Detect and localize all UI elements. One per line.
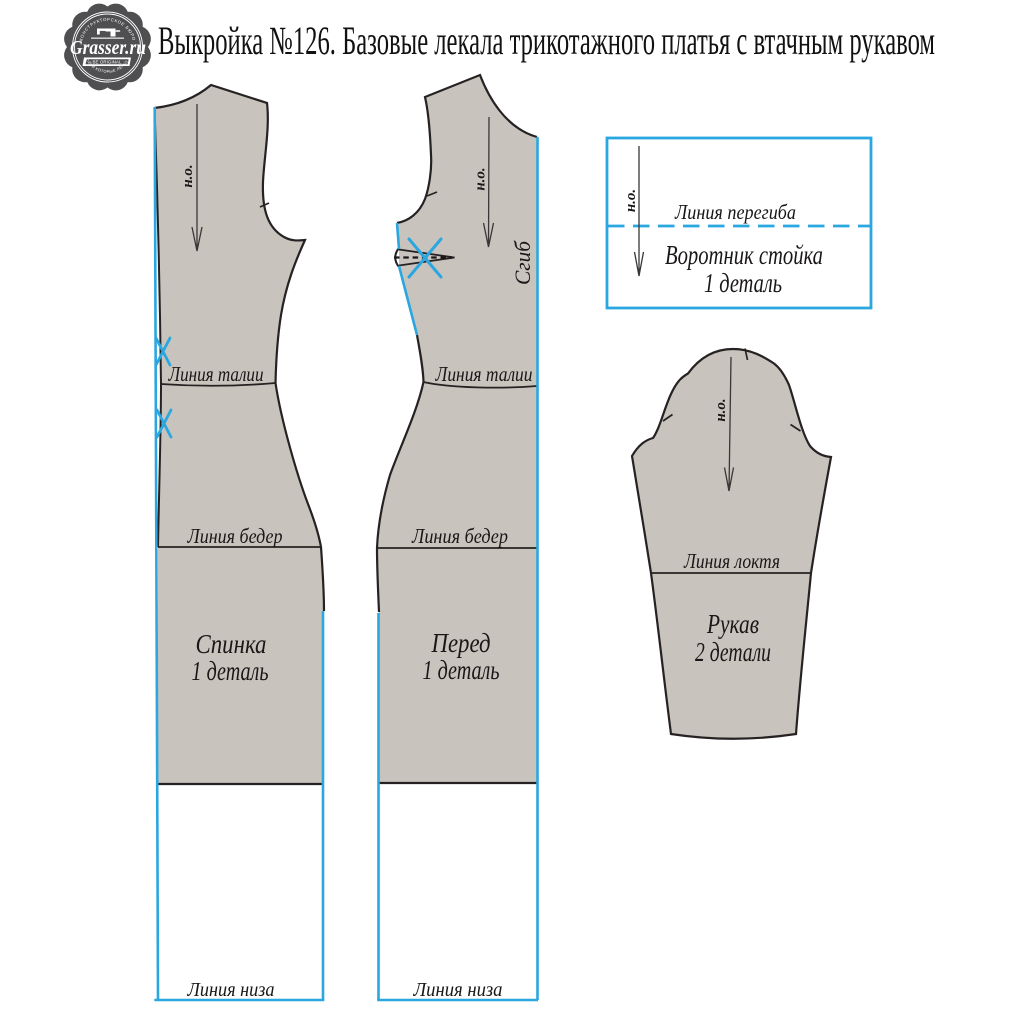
svg-text:Перед: Перед bbox=[431, 628, 491, 658]
svg-text:Спинка: Спинка bbox=[196, 629, 267, 659]
svg-text:Рукав: Рукав bbox=[706, 609, 759, 639]
svg-text:1 деталь: 1 деталь bbox=[704, 268, 782, 298]
svg-text:н.о.: н.о. bbox=[713, 398, 729, 421]
svg-text:1 деталь: 1 деталь bbox=[192, 656, 269, 686]
svg-text:Линия низа: Линия низа bbox=[413, 979, 503, 1001]
svg-text:Линия перегиба: Линия перегиба bbox=[674, 200, 796, 224]
svg-text:Воротник стойка: Воротник стойка bbox=[665, 240, 823, 270]
svg-text:1 деталь: 1 деталь bbox=[423, 655, 500, 685]
svg-text:Выкройка №126. Базовые лекала: Выкройка №126. Базовые лекала трикотажно… bbox=[158, 18, 935, 63]
svg-text:н.о.: н.о. bbox=[180, 164, 196, 187]
svg-text:н.о.: н.о. bbox=[473, 167, 489, 190]
svg-text:Сгиб: Сгиб bbox=[510, 240, 535, 285]
svg-text:BE ORIGINAL: BE ORIGINAL bbox=[93, 60, 123, 65]
svg-text:Линия талии: Линия талии bbox=[435, 362, 533, 386]
svg-text:Линия бедер: Линия бедер bbox=[411, 524, 508, 548]
svg-text:2 детали: 2 детали bbox=[695, 637, 771, 667]
svg-text:Линия талии: Линия талии bbox=[168, 362, 264, 386]
svg-text:Линия низа: Линия низа bbox=[187, 979, 275, 1001]
svg-text:н.о.: н.о. bbox=[623, 189, 639, 212]
svg-text:Линия локтя: Линия локтя bbox=[683, 549, 780, 573]
svg-text:Линия бедер: Линия бедер bbox=[187, 524, 283, 548]
